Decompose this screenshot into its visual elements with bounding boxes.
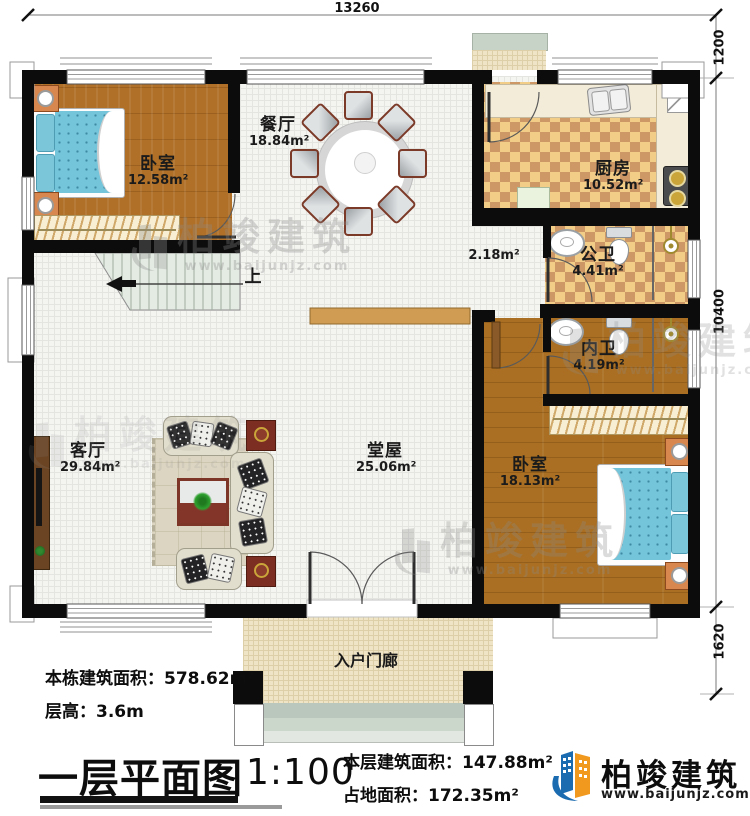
room-label-public-bath: 公卫4.41m² [571,246,625,280]
title-underline [40,796,238,803]
floor-height: 层高：3.6m [45,697,144,722]
brand-logo-icon [546,746,596,802]
brand-website: www.baijunjz.com [601,787,750,802]
total-building-area: 本栋建筑面积：578.62m² [45,664,255,689]
room-label-living: 客厅29.84m² [60,442,116,476]
room-label-bedroom-top: 卧室12.58m² [128,155,188,189]
dimension-lines [22,9,734,700]
room-label-kitchen: 厨房10.52m² [583,160,643,194]
stairs [95,250,243,312]
dimension-top: 13260 [327,1,387,16]
room-label-hall: 堂屋25.06m² [356,442,414,476]
floor-plan-sheet: 卧室12.58m² 餐厅18.84m² 厨房10.52m² 公卫4.41m² 内… [0,0,750,816]
dimension-right-middle: 10400 [713,282,728,342]
room-label-bedroom-bottom: 卧室18.13m² [496,456,564,490]
room-label-corridor: 2.18m² [462,249,526,264]
porch-column-right [463,671,493,704]
dimension-right-lower: 1620 [713,612,728,672]
floorplan-linework [0,0,750,816]
footprint-area: 占地面积：172.35m² [343,781,519,806]
room-label-private-bath: 内卫4.19m² [572,340,626,374]
room-label-dining: 餐厅18.84m² [249,116,307,150]
floor-building-area: 本层建筑面积：147.88m² [343,748,553,773]
partition-beam [310,308,470,324]
porch-column-base-left [234,704,264,746]
plan-scale: 1:100 [246,752,355,793]
room-label-porch: 入户门廊 [318,652,414,670]
porch-column-base-right [464,704,494,746]
dimension-right-upper: 1200 [713,18,728,78]
window-sills [60,58,658,632]
doors [197,92,592,617]
stairs-up-label: 上 [242,268,264,287]
title-underline-light [40,805,282,809]
